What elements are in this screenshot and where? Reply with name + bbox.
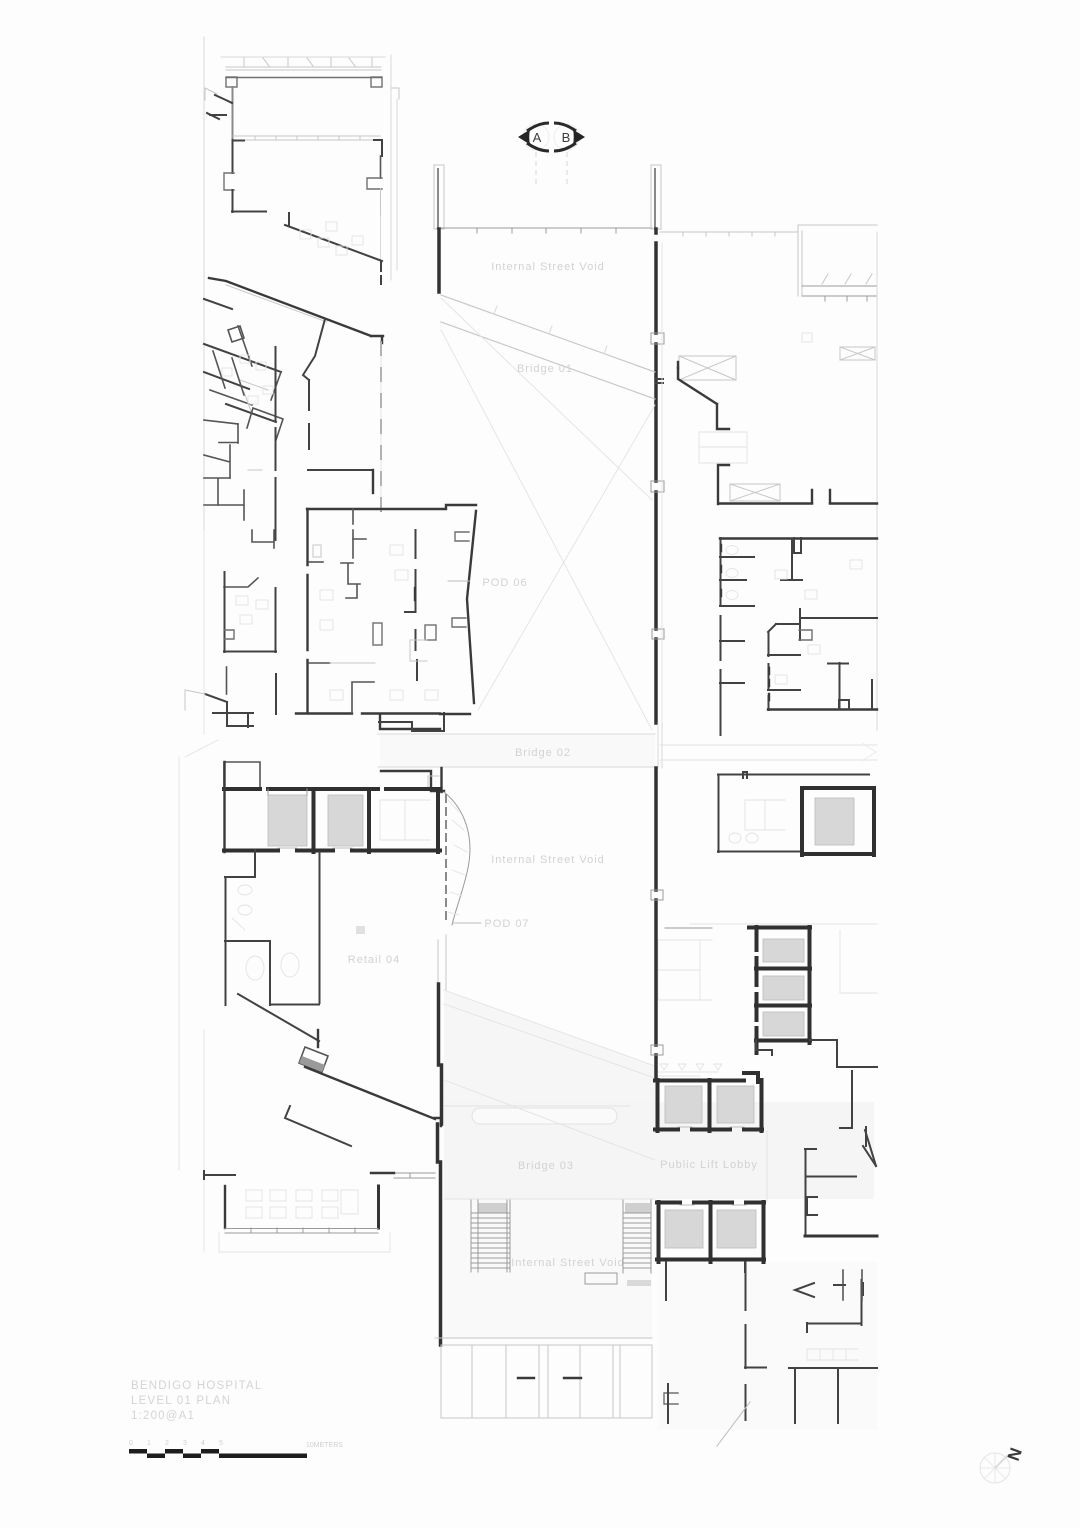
svg-text:3: 3 <box>183 1440 187 1447</box>
svg-text:2: 2 <box>165 1440 169 1447</box>
svg-text:Bridge 01: Bridge 01 <box>517 363 573 375</box>
svg-text:Internal Street Void: Internal Street Void <box>491 854 605 866</box>
svg-text:Bridge 02: Bridge 02 <box>515 747 571 759</box>
svg-text:Internal Street Void: Internal Street Void <box>511 1257 625 1269</box>
svg-text:Internal Street Void: Internal Street Void <box>491 261 605 273</box>
svg-text:0: 0 <box>129 1440 133 1447</box>
svg-text:BENDIGO HOSPITAL: BENDIGO HOSPITAL <box>131 1380 262 1392</box>
svg-text:B: B <box>562 130 571 145</box>
svg-text:A: A <box>533 130 542 145</box>
svg-text:1: 1 <box>147 1440 151 1447</box>
svg-text:5: 5 <box>219 1440 223 1447</box>
svg-text:Retail 04: Retail 04 <box>348 954 400 966</box>
svg-text:LEVEL 01 PLAN: LEVEL 01 PLAN <box>131 1395 231 1407</box>
svg-text:POD 06: POD 06 <box>482 577 527 589</box>
svg-text:Public Lift Lobby: Public Lift Lobby <box>660 1159 758 1171</box>
svg-text:1:200@A1: 1:200@A1 <box>131 1410 195 1422</box>
svg-text:10METERS: 10METERS <box>306 1442 343 1449</box>
svg-text:4: 4 <box>201 1440 205 1447</box>
svg-text:Bridge 03: Bridge 03 <box>518 1160 574 1172</box>
svg-text:POD 07: POD 07 <box>484 918 529 930</box>
